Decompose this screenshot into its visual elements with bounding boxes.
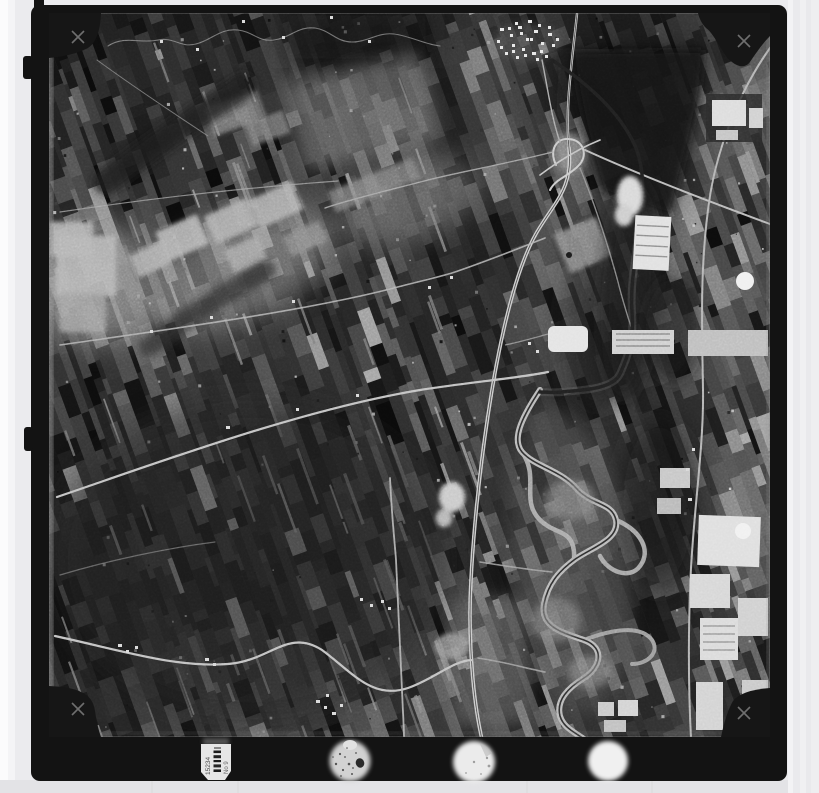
svg-text:15234: 15234: [205, 757, 212, 775]
svg-text:No 9: No 9: [224, 761, 230, 774]
